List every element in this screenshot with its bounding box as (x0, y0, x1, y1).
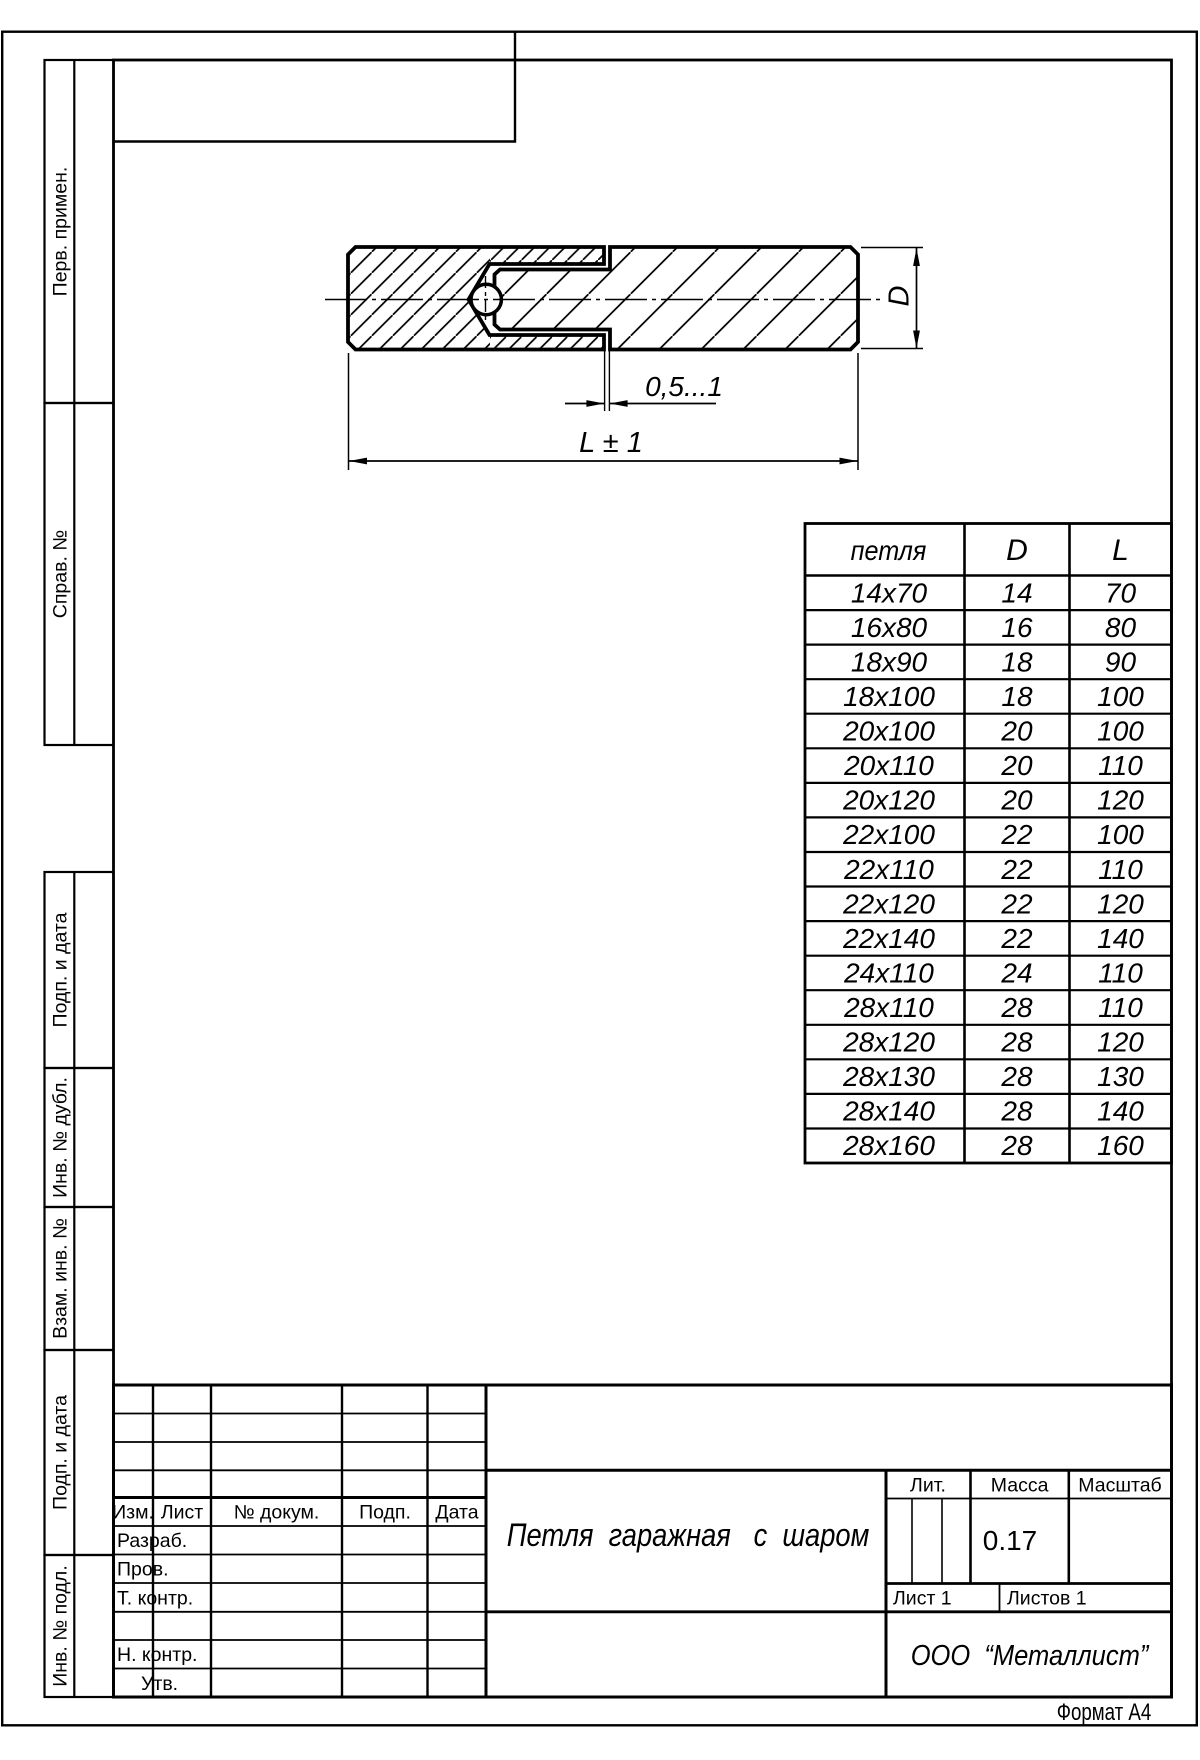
svg-text:D: D (884, 285, 916, 306)
svg-text:Взам. инв. №: Взам. инв. № (50, 1218, 72, 1339)
svg-text:28: 28 (1000, 1130, 1033, 1161)
svg-text:120: 120 (1097, 785, 1144, 816)
svg-text:22x140: 22x140 (842, 923, 935, 954)
svg-text:Перв. примен.: Перв. примен. (50, 167, 72, 297)
svg-text:16x80: 16x80 (851, 612, 928, 643)
svg-text:0.17: 0.17 (983, 1525, 1038, 1556)
svg-text:Н. контр.: Н. контр. (117, 1644, 197, 1666)
svg-text:120: 120 (1097, 1027, 1144, 1058)
svg-text:Т. контр.: Т. контр. (117, 1587, 193, 1609)
svg-text:№ докум.: № докум. (234, 1502, 320, 1524)
svg-text:100: 100 (1097, 716, 1144, 747)
svg-text:22x120: 22x120 (842, 888, 935, 919)
svg-text:22: 22 (1000, 923, 1033, 954)
svg-text:20x120: 20x120 (842, 785, 935, 816)
svg-text:L: L (1112, 534, 1129, 567)
svg-text:140: 140 (1097, 1096, 1144, 1127)
svg-text:70: 70 (1105, 577, 1137, 608)
svg-text:28: 28 (1000, 1096, 1033, 1127)
svg-text:Инв. № подл.: Инв. № подл. (50, 1565, 72, 1686)
svg-text:130: 130 (1097, 1061, 1144, 1092)
svg-text:Изм.: Изм. (112, 1502, 154, 1524)
svg-text:20: 20 (1000, 785, 1033, 816)
svg-text:18x90: 18x90 (851, 646, 928, 677)
svg-text:Инв. № дубл.: Инв. № дубл. (50, 1077, 72, 1198)
svg-text:20x110: 20x110 (843, 750, 934, 781)
svg-text:14: 14 (1001, 577, 1032, 608)
svg-text:28: 28 (1000, 1027, 1033, 1058)
svg-text:Формат А4: Формат А4 (1057, 1699, 1152, 1726)
svg-text:Листов 1: Листов 1 (1007, 1587, 1087, 1609)
svg-text:Утв.: Утв. (141, 1673, 178, 1695)
svg-text:18: 18 (1001, 646, 1033, 677)
svg-text:160: 160 (1097, 1130, 1144, 1161)
svg-text:Дата: Дата (435, 1502, 478, 1524)
svg-text:Лист: Лист (161, 1502, 203, 1524)
svg-text:110: 110 (1098, 750, 1143, 781)
svg-text:16: 16 (1001, 612, 1033, 643)
svg-text:120: 120 (1097, 888, 1144, 919)
svg-text:28x120: 28x120 (842, 1027, 935, 1058)
svg-text:100: 100 (1097, 681, 1144, 712)
svg-text:Лит.: Лит. (910, 1475, 946, 1497)
svg-text:D: D (1006, 534, 1028, 567)
svg-text:14x70: 14x70 (851, 577, 928, 608)
svg-text:28x130: 28x130 (842, 1061, 935, 1092)
svg-text:Подп.: Подп. (359, 1502, 411, 1524)
svg-text:28: 28 (1000, 992, 1033, 1023)
svg-text:Петля гаражная с шаром: Петля гаражная с шаром (507, 1518, 870, 1554)
svg-text:22: 22 (1000, 888, 1033, 919)
svg-text:0,5...1: 0,5...1 (645, 371, 723, 402)
svg-text:ООО “Металлист”: ООО “Металлист” (911, 1638, 1150, 1671)
svg-text:110: 110 (1098, 854, 1143, 885)
svg-text:28x140: 28x140 (842, 1096, 935, 1127)
svg-text:Лист 1: Лист 1 (893, 1587, 952, 1609)
svg-text:петля: петля (851, 535, 927, 567)
svg-text:Справ. №: Справ. № (50, 530, 72, 618)
svg-text:20: 20 (1000, 750, 1033, 781)
svg-text:20: 20 (1000, 716, 1033, 747)
svg-text:80: 80 (1105, 612, 1137, 643)
svg-text:Масса: Масса (991, 1475, 1049, 1497)
svg-text:22x100: 22x100 (842, 819, 935, 850)
svg-text:28: 28 (1000, 1061, 1033, 1092)
svg-text:22: 22 (1000, 854, 1033, 885)
svg-text:90: 90 (1105, 646, 1137, 677)
svg-text:Пров.: Пров. (117, 1559, 168, 1581)
svg-text:24x110: 24x110 (843, 957, 934, 988)
svg-text:20x100: 20x100 (842, 716, 935, 747)
svg-text:Подп. и дата: Подп. и дата (50, 912, 72, 1027)
svg-text:110: 110 (1098, 957, 1143, 988)
svg-text:110: 110 (1098, 992, 1143, 1023)
svg-text:24: 24 (1000, 957, 1032, 988)
svg-text:28x160: 28x160 (842, 1130, 935, 1161)
svg-text:L ± 1: L ± 1 (579, 427, 643, 459)
svg-text:22: 22 (1000, 819, 1033, 850)
svg-text:28x110: 28x110 (843, 992, 934, 1023)
svg-text:18x100: 18x100 (843, 681, 935, 712)
svg-text:22x110: 22x110 (843, 854, 934, 885)
svg-text:100: 100 (1097, 819, 1144, 850)
svg-text:18: 18 (1001, 681, 1033, 712)
svg-text:Подп. и дата: Подп. и дата (50, 1395, 72, 1510)
svg-text:Масштаб: Масштаб (1078, 1475, 1161, 1497)
svg-text:140: 140 (1097, 923, 1144, 954)
svg-text:Разраб.: Разраб. (117, 1530, 187, 1552)
